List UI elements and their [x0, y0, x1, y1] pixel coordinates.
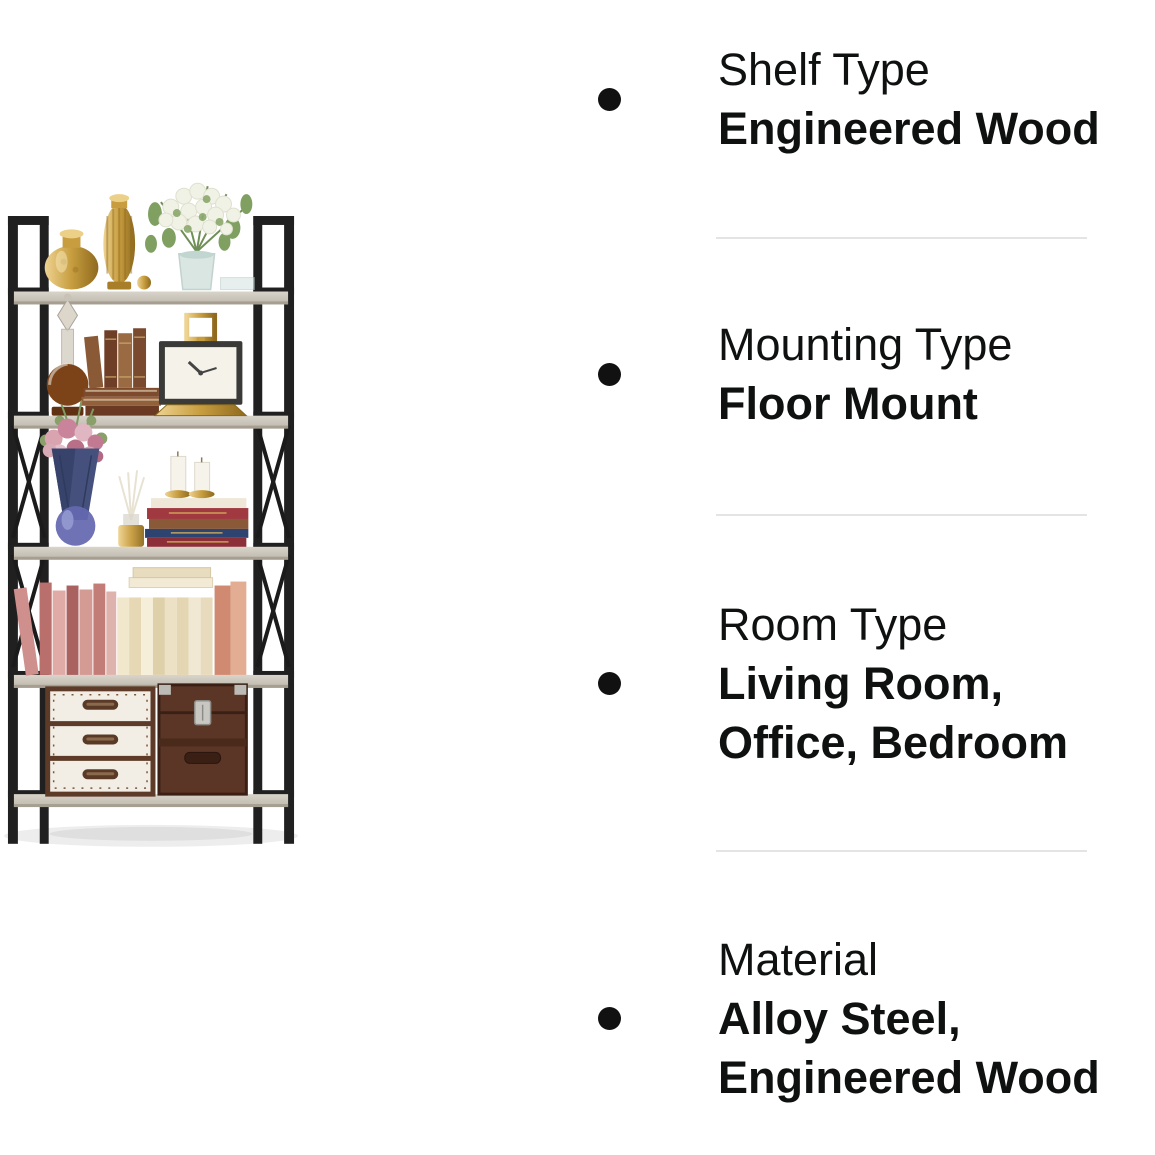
- decor-tier-4: [14, 568, 247, 676]
- decor-tier-5: [48, 685, 247, 794]
- bookshelf-illustration: [2, 180, 300, 852]
- feature-label: Room Type: [718, 595, 1150, 654]
- bullet-icon: [598, 1007, 621, 1030]
- feature-value: Floor Mount: [718, 374, 1150, 433]
- feature-label: Material: [718, 930, 1150, 989]
- product-image: [2, 180, 300, 852]
- feature-item-material: Material Alloy Steel, Engineered Wood: [598, 930, 1155, 1107]
- feature-value: Alloy Steel, Engineered Wood: [718, 989, 1150, 1107]
- feature-label: Mounting Type: [718, 315, 1150, 374]
- feature-item-mounting-type: Mounting Type Floor Mount: [598, 315, 1155, 433]
- decor-tier-1: [45, 183, 255, 289]
- feature-item-shelf-type: Shelf Type Engineered Wood: [598, 40, 1155, 158]
- bullet-icon: [598, 672, 621, 695]
- divider: [716, 237, 1087, 239]
- feature-item-room-type: Room Type Living Room, Office, Bedroom: [598, 595, 1155, 772]
- feature-label: Shelf Type: [718, 40, 1150, 99]
- bullet-icon: [598, 88, 621, 111]
- feature-value: Engineered Wood: [718, 99, 1150, 158]
- divider: [716, 514, 1087, 516]
- product-feature-section: Shelf Type Engineered Wood Mounting Type…: [0, 0, 1155, 1155]
- divider: [716, 850, 1087, 852]
- decor-tier-2: [47, 293, 247, 415]
- bullet-icon: [598, 363, 621, 386]
- feature-value: Living Room, Office, Bedroom: [718, 654, 1150, 772]
